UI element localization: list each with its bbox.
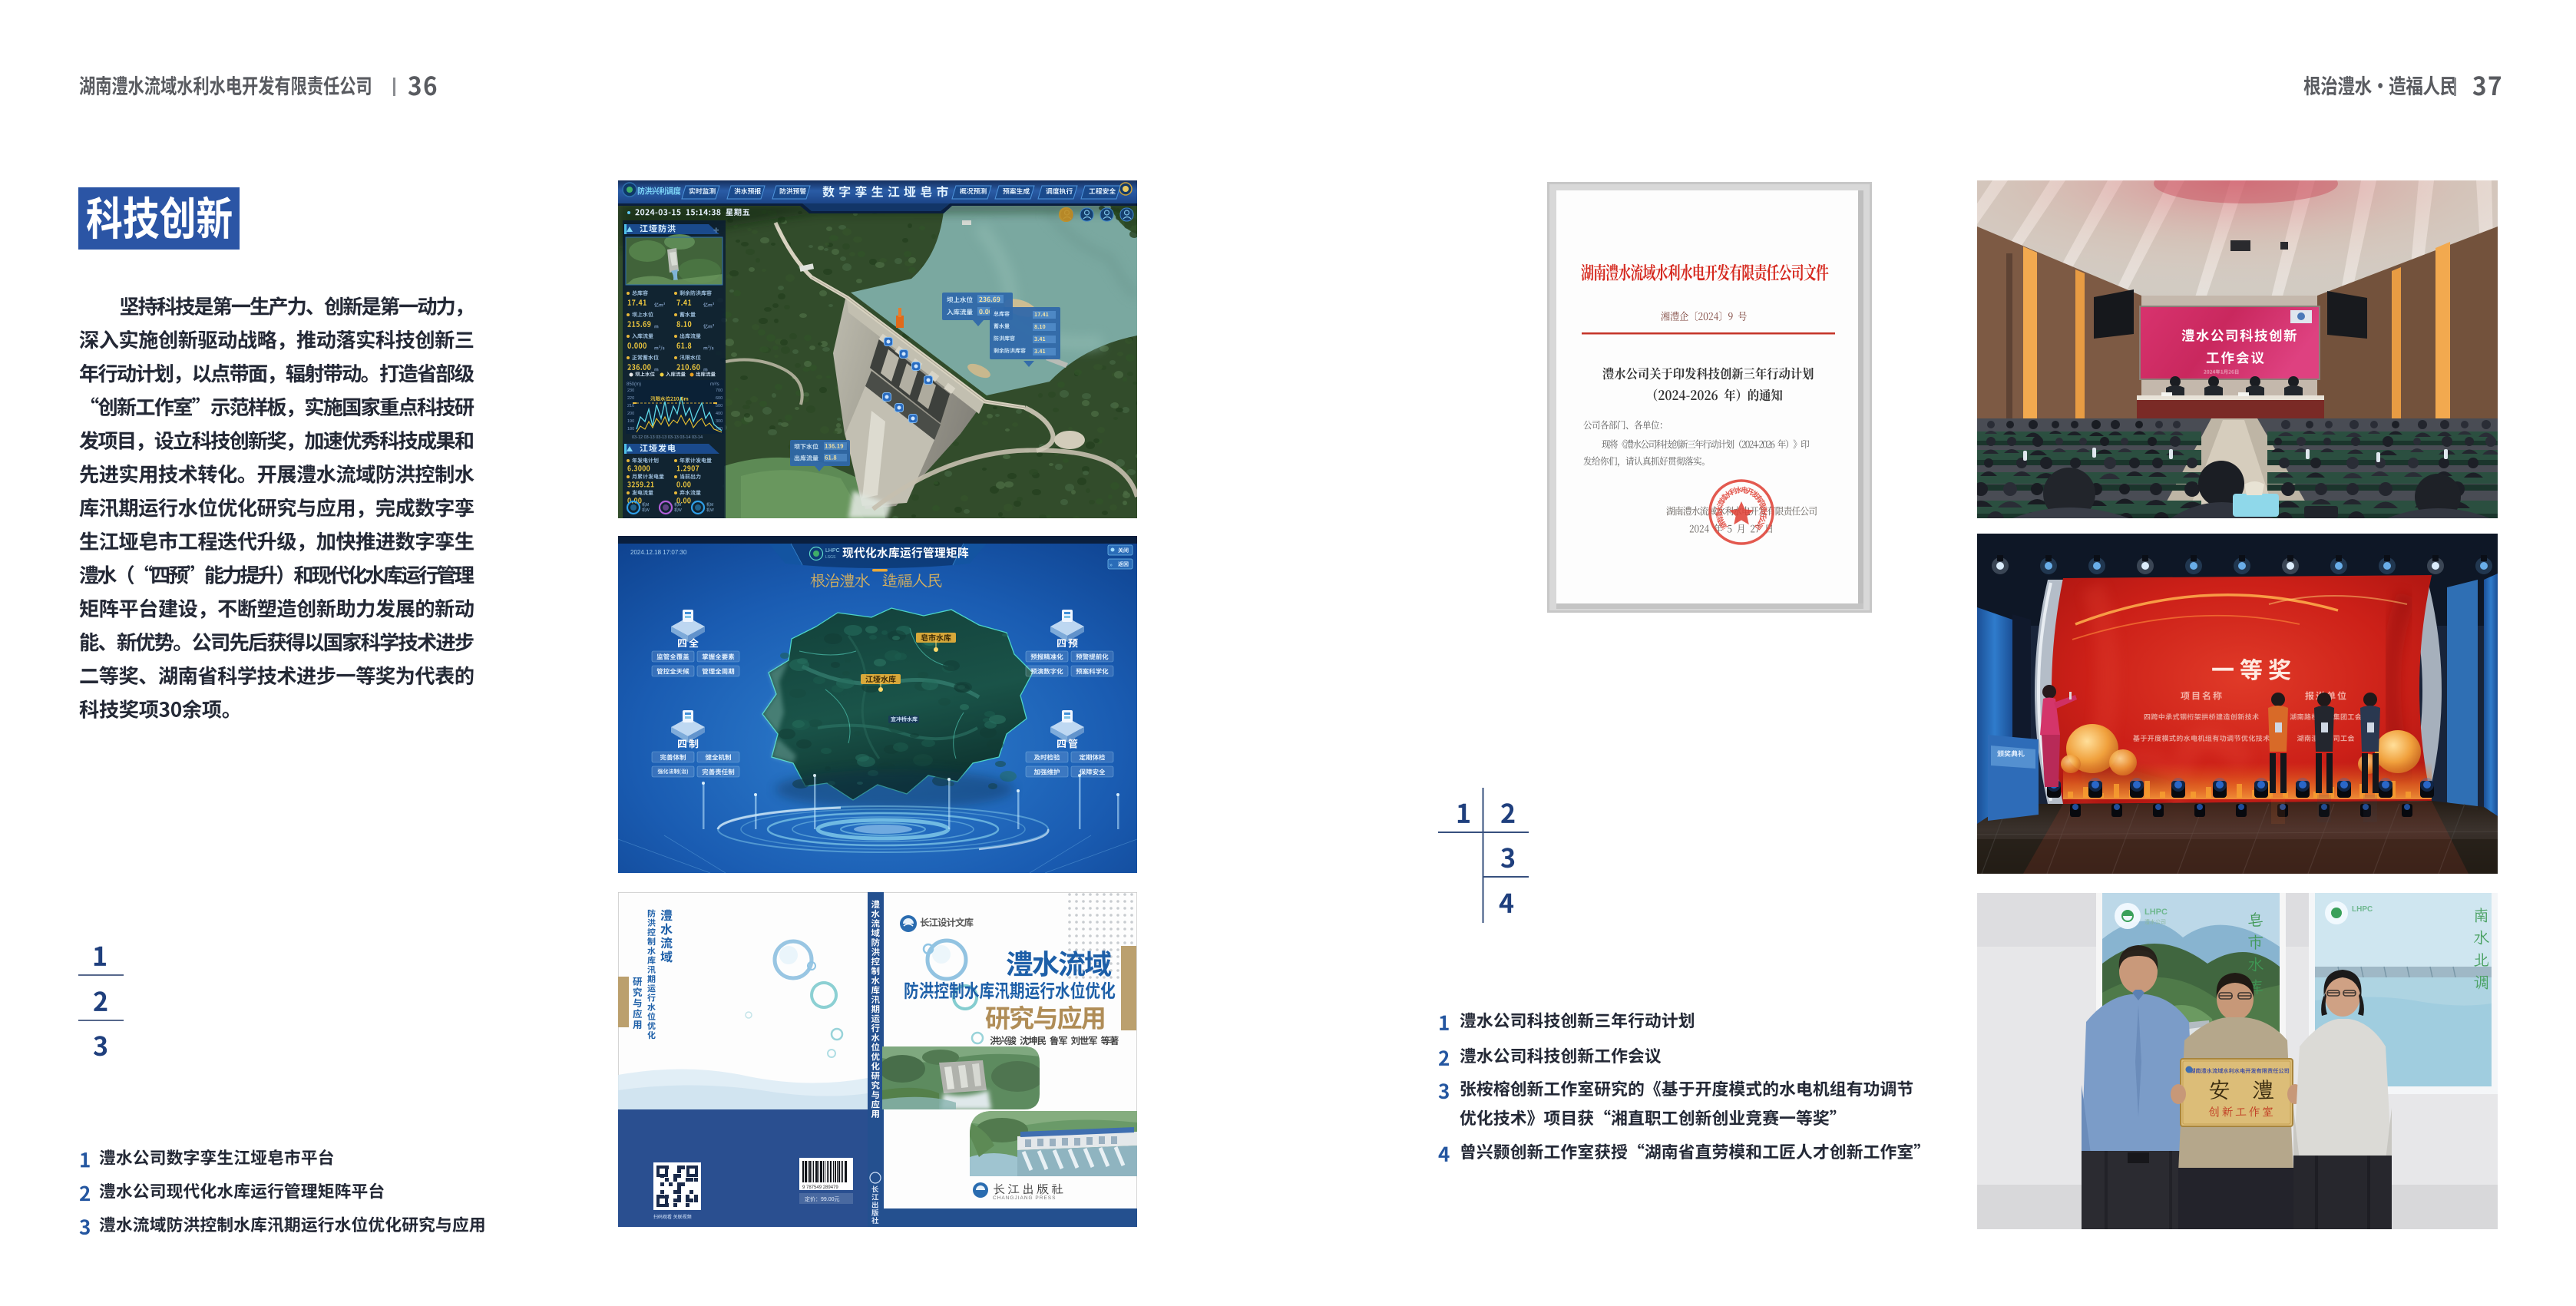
svg-text:230: 230 [627, 388, 634, 393]
svg-text:300: 300 [716, 419, 723, 424]
svg-text:机W: 机W [706, 508, 714, 513]
svg-text:220: 220 [627, 396, 634, 401]
svg-text:定价：99.00元: 定价：99.00元 [805, 1195, 840, 1202]
svg-text:03-12 03-13 03-13 03-13 03: 03-12 03-13 03-13 03-13 03-14 03-14 [632, 435, 703, 440]
svg-text:LSGS: LSGS [825, 555, 836, 560]
svg-text:9 787549 289479: 9 787549 289479 [802, 1185, 838, 1190]
svg-text:210: 210 [627, 404, 634, 408]
svg-text:LHPC: LHPC [825, 548, 840, 554]
svg-text:LHPC: LHPC [2144, 908, 2168, 917]
svg-text:机M: 机M [706, 502, 713, 508]
svg-text:机W: 机W [642, 508, 650, 513]
svg-text:850(m): 850(m) [627, 382, 641, 387]
svg-text:180: 180 [627, 427, 634, 431]
svg-text:190: 190 [627, 419, 634, 424]
svg-text:m³/s: m³/s [710, 382, 719, 387]
svg-text:600: 600 [716, 396, 723, 401]
svg-text:扫码观看 关联视频: 扫码观看 关联视频 [653, 1214, 692, 1220]
svg-text:LHPC: LHPC [2352, 905, 2373, 914]
svg-text:»: » [1109, 563, 1113, 568]
svg-text:澧水公司: 澧水公司 [2144, 918, 2166, 925]
svg-text:机M: 机M [642, 502, 649, 508]
svg-text:机M: 机M [674, 502, 681, 508]
svg-text:CHANGJIANG PRESS: CHANGJIANG PRESS [993, 1195, 1056, 1201]
svg-text:400: 400 [716, 412, 723, 416]
svg-text:500: 500 [716, 404, 723, 408]
svg-text:✛: ✛ [713, 226, 719, 234]
svg-text:机W: 机W [674, 508, 682, 513]
svg-text:2024.12.18 17:07:30: 2024.12.18 17:07:30 [630, 549, 687, 556]
svg-text:700: 700 [716, 388, 723, 393]
svg-text:200: 200 [627, 412, 634, 416]
